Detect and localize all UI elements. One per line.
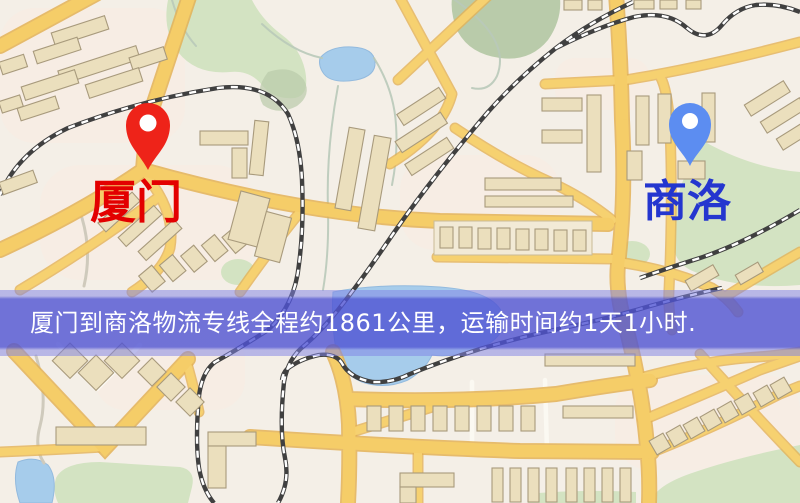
route-info-text: 厦门到商洛物流专线全程约1861公里，运输时间约1天1小时. [0, 311, 696, 335]
destination-city-label: 商洛 [643, 176, 732, 227]
lake [320, 47, 376, 81]
origin-city-label: 厦门 [90, 175, 182, 229]
origin-pin-hole [140, 115, 157, 132]
pond [15, 459, 54, 503]
route-info-banner: 厦门到商洛物流专线全程约1861公里，运输时间约1天1小时. [0, 290, 800, 356]
map-image: 厦门 商洛 [0, 0, 800, 503]
route-map: 厦门 商洛 厦门到商洛物流专线全程约1861公里，运输时间约1天1小时. [0, 0, 800, 503]
destination-pin-hole [682, 113, 698, 129]
